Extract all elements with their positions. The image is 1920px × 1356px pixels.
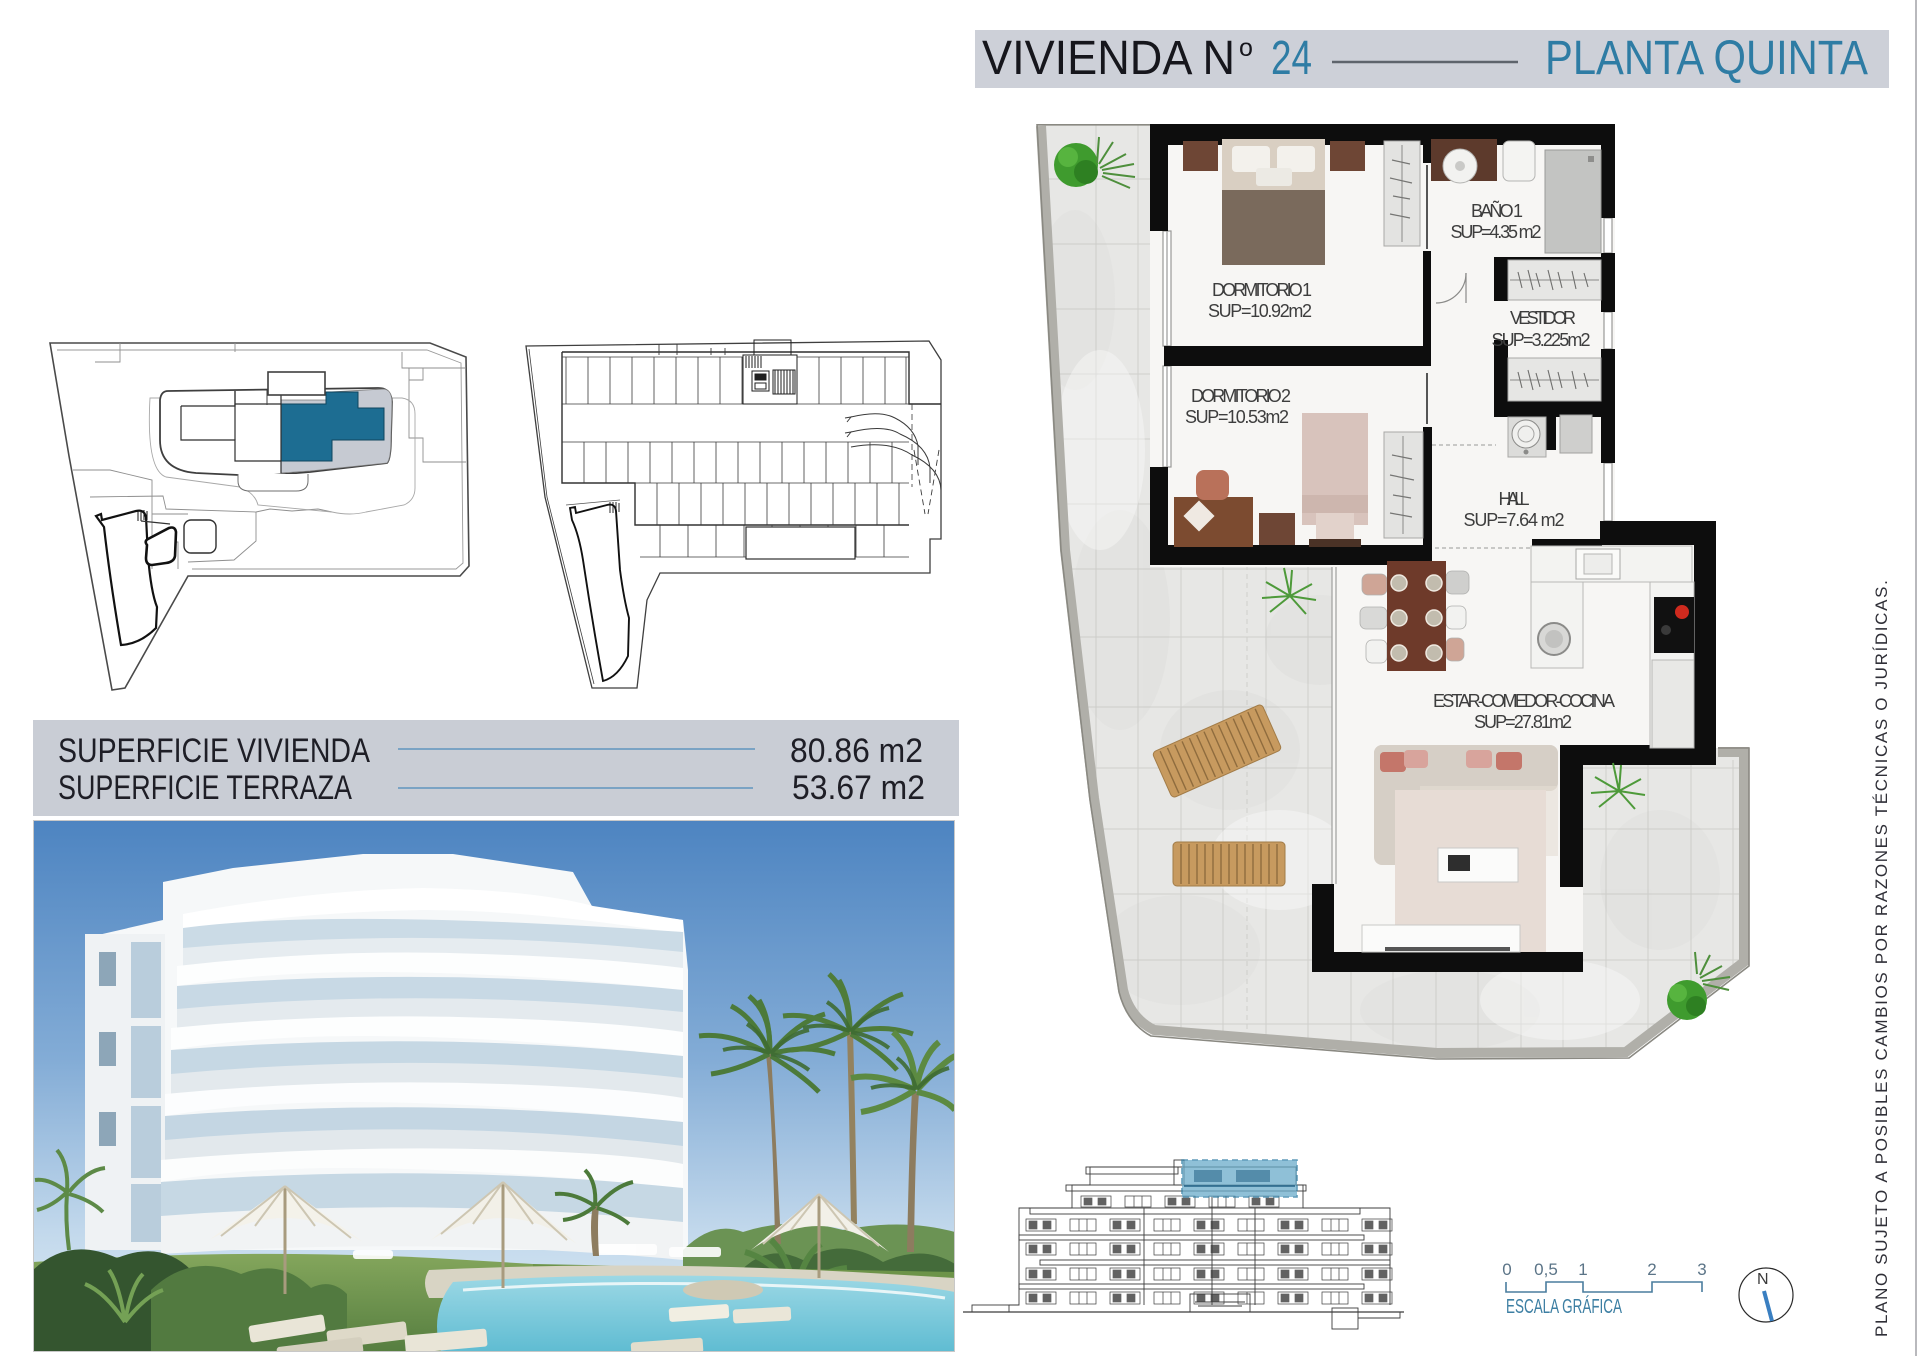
svg-text:SUP=10.53m2: SUP=10.53m2 — [1185, 407, 1289, 427]
svg-text:SUPERFICIE VIVIENDA: SUPERFICIE VIVIENDA — [58, 732, 370, 770]
svg-text:SUP=7.64 m2: SUP=7.64 m2 — [1464, 510, 1565, 530]
svg-text:HALL: HALL — [1499, 489, 1530, 509]
svg-text:N: N — [1757, 1271, 1769, 1288]
svg-text:SUP=4.35 m2: SUP=4.35 m2 — [1451, 222, 1542, 242]
svg-text:0,5: 0,5 — [1534, 1260, 1558, 1279]
svg-text:DORMITORIO 2: DORMITORIO 2 — [1191, 386, 1291, 406]
svg-text:o: o — [1239, 34, 1253, 62]
svg-text:SUPERFICIE TERRAZA: SUPERFICIE TERRAZA — [58, 769, 352, 807]
svg-text:SUP=3.225m2: SUP=3.225m2 — [1492, 330, 1591, 350]
svg-text:VIVIENDA N: VIVIENDA N — [982, 32, 1235, 85]
svg-text:SUP=27.81m2: SUP=27.81m2 — [1474, 712, 1572, 732]
svg-text:PLANTA QUINTA: PLANTA QUINTA — [1545, 32, 1868, 85]
svg-text:80.86 m2: 80.86 m2 — [790, 732, 923, 770]
svg-text:2: 2 — [1647, 1260, 1656, 1279]
svg-text:0: 0 — [1502, 1260, 1511, 1279]
svg-text:VESTIDOR: VESTIDOR — [1510, 308, 1576, 328]
svg-text:SUP=10.92m2: SUP=10.92m2 — [1208, 301, 1312, 321]
svg-text:3: 3 — [1697, 1260, 1706, 1279]
svg-text:BAÑO 1: BAÑO 1 — [1471, 200, 1523, 221]
svg-text:53.67 m2: 53.67 m2 — [792, 769, 925, 807]
svg-text:24: 24 — [1271, 32, 1312, 85]
svg-text:1: 1 — [1578, 1260, 1587, 1279]
svg-text:DORMITORIO 1: DORMITORIO 1 — [1212, 280, 1312, 300]
svg-text:ESCALA GRÁFICA: ESCALA GRÁFICA — [1506, 1295, 1622, 1318]
svg-text:ESTAR-COMEDOR-COCINA: ESTAR-COMEDOR-COCINA — [1433, 691, 1615, 711]
